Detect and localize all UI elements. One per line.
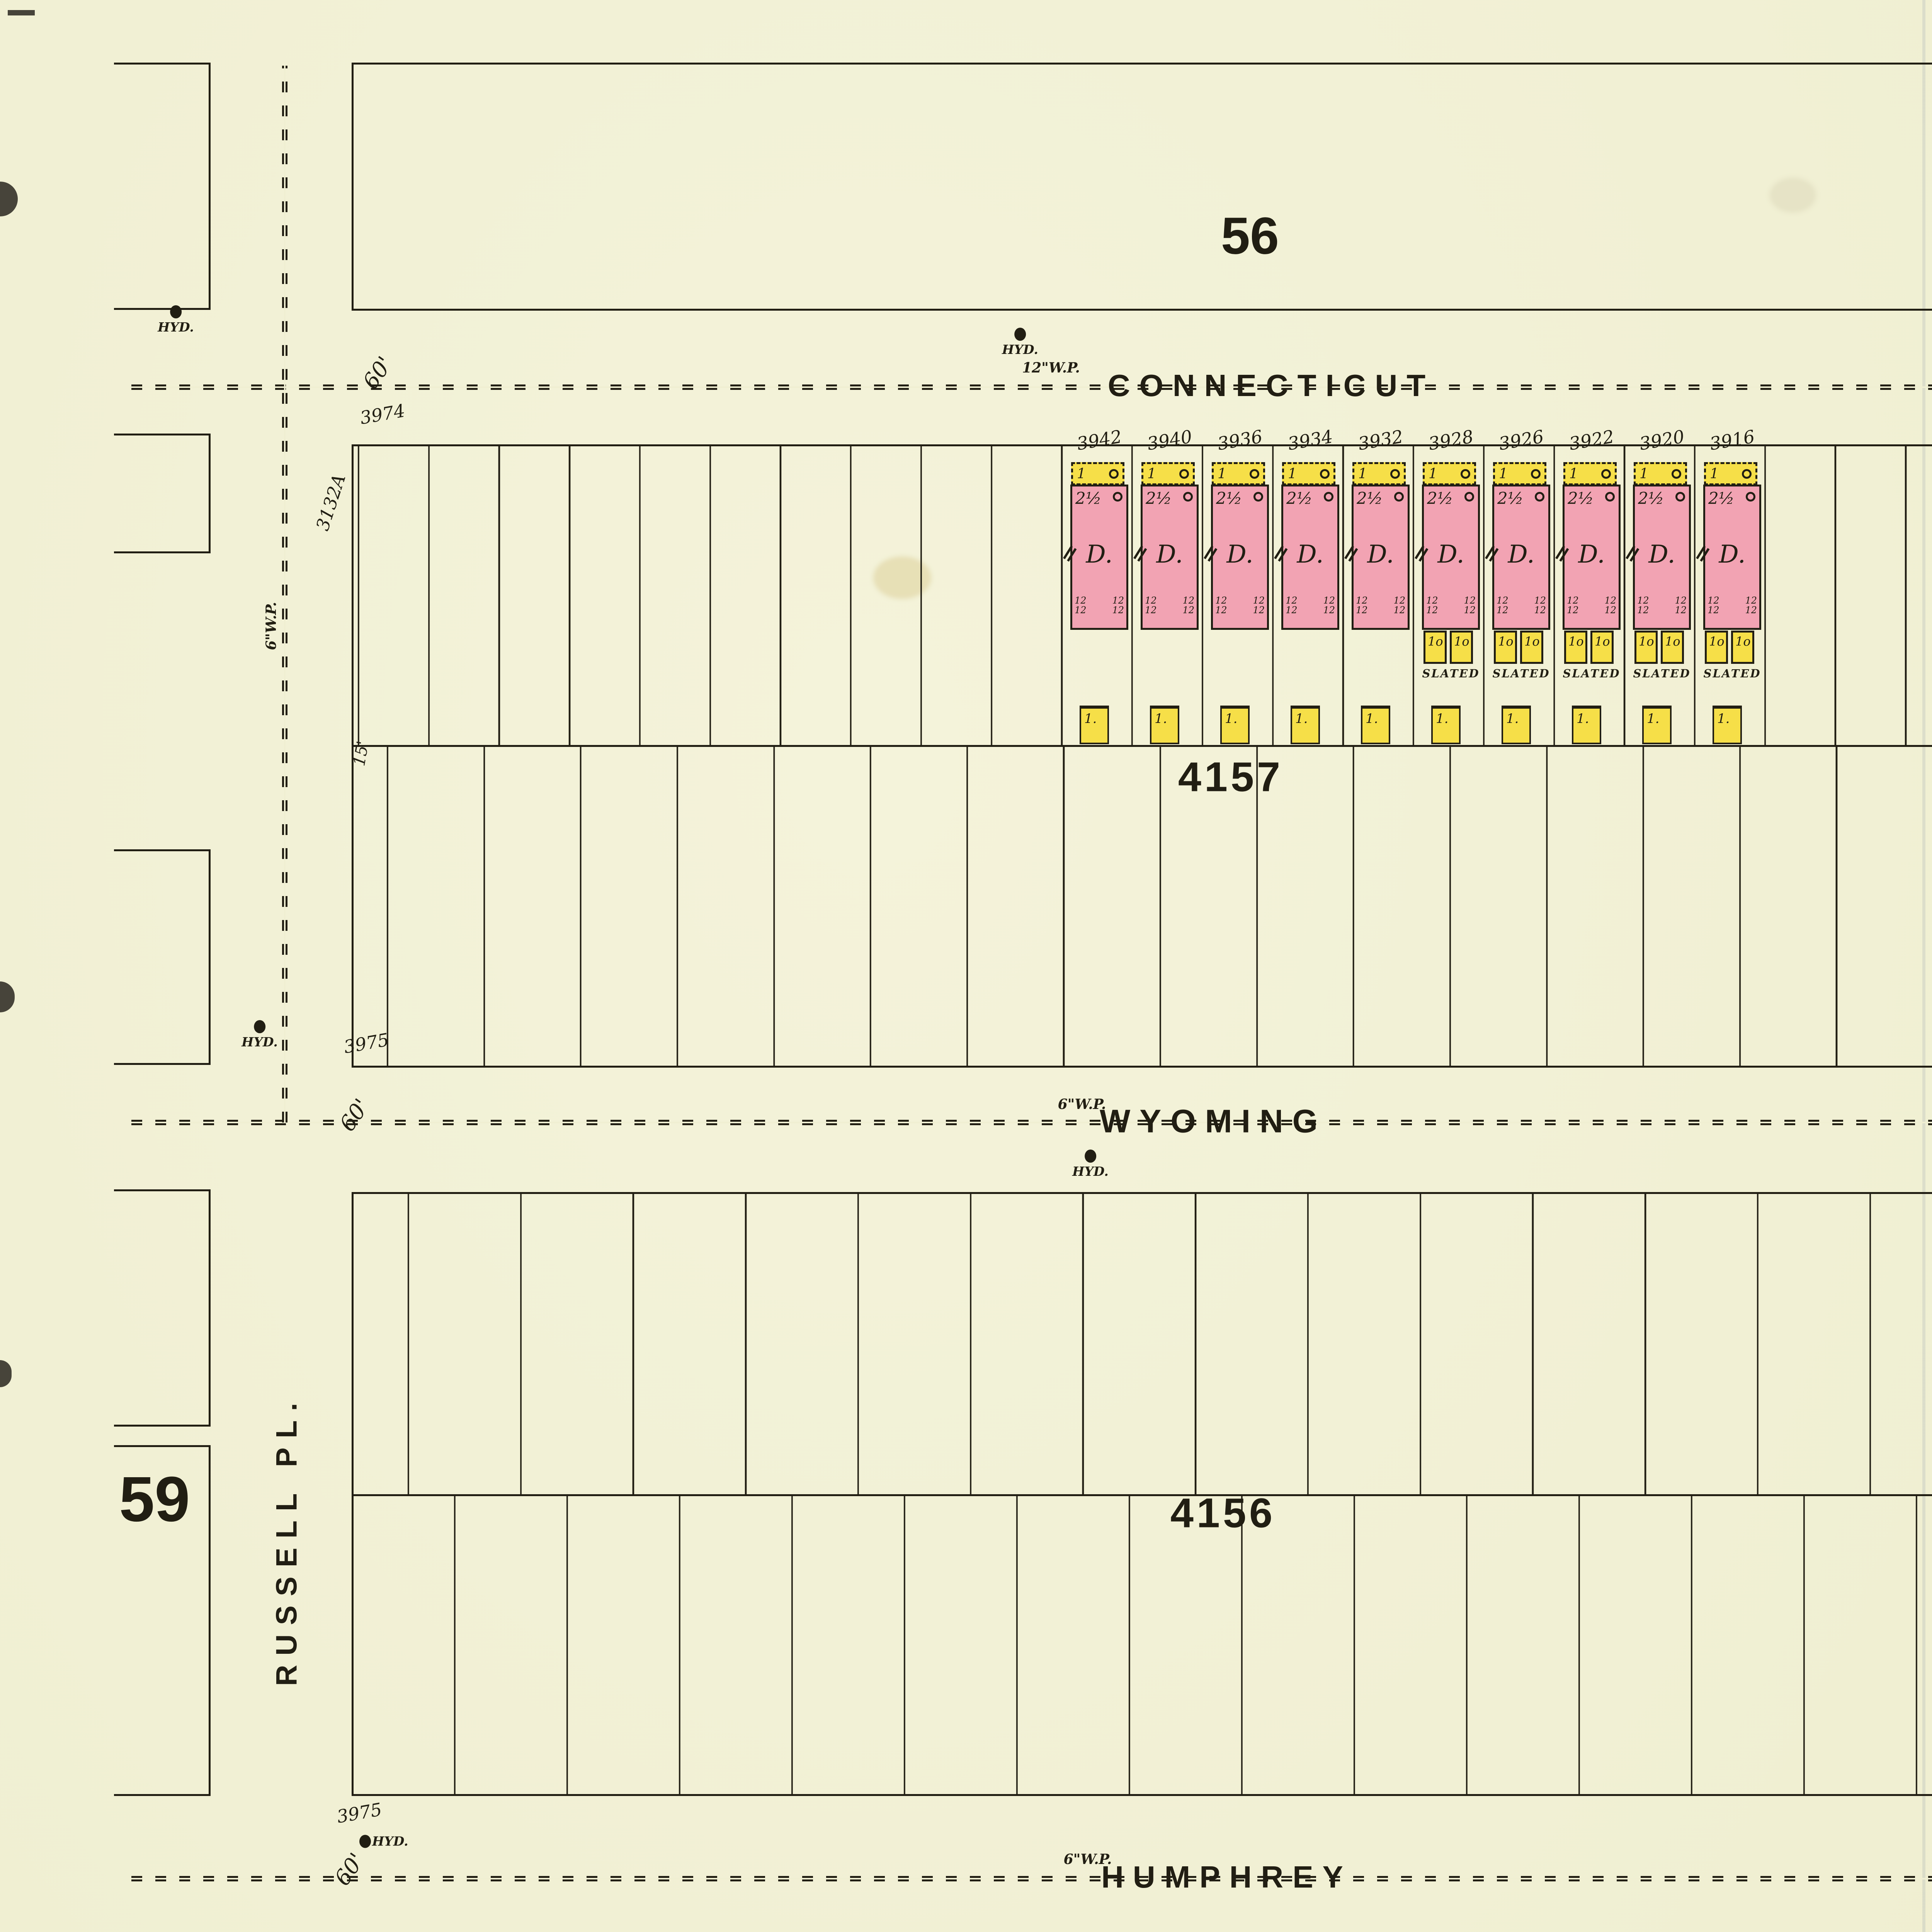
row-house-dwelling: 3936 1 2½ D. 1212 1212 1o 1o SLATED (1211, 462, 1269, 679)
street-name-russell-pl: RUSSELL PL. (270, 1394, 304, 1686)
waterpipe-label: 6"W.P. (263, 602, 279, 650)
shed: 1. (1572, 706, 1601, 744)
rear-porch: 1o (1450, 631, 1473, 664)
circle-mark-icon (1531, 469, 1541, 479)
stories-label: 2½ (1357, 489, 1383, 508)
house-body: 2½ D. 1212 1212 (1281, 485, 1339, 630)
hydrant-dot-icon (359, 1835, 371, 1848)
shed-story-label: 1. (1225, 711, 1237, 726)
porch-story-label: 1 (1569, 466, 1578, 482)
corner-mark: 1212 (1567, 596, 1579, 615)
corner-mark: 1212 (1112, 596, 1124, 615)
porch-story-label: 1 (1288, 466, 1297, 482)
corner-mark: 1212 (1637, 596, 1649, 615)
shed-story-label: 1. (1295, 711, 1308, 726)
edge-tear (0, 981, 15, 1012)
rear-porches: 1o 1o (1705, 631, 1754, 664)
front-porch: 1 (1141, 462, 1195, 485)
row-house-dwelling: 3940 1 2½ D. 1212 1212 1o 1o SLATED (1141, 462, 1199, 679)
circle-mark-icon (1183, 492, 1193, 502)
circle-mark-icon (1250, 469, 1259, 479)
circle-mark-icon (1601, 469, 1611, 479)
circle-mark-icon (1605, 492, 1615, 502)
fire-hydrant: HYD. (158, 305, 194, 335)
stories-label: 2½ (1568, 489, 1594, 508)
row-house-dwelling: 3932 1 2½ D. 1212 1212 1o 1o SLATED (1352, 462, 1410, 679)
row-house-dwelling: 3942 1 2½ D. 1212 1212 1o 1o SLATED (1070, 462, 1128, 679)
stories-label: 2½ (1638, 489, 1664, 508)
waterpipe-wyoming (131, 1120, 1932, 1125)
circle-mark-icon (1672, 469, 1681, 479)
waterpipe-russell (282, 66, 287, 1122)
side-address: 3132A (312, 471, 350, 533)
rear-porches: 1o 1o (1634, 631, 1684, 664)
front-porch: 1 (1493, 462, 1546, 485)
shed: 1. (1150, 706, 1179, 744)
rear-porches: 1o 1o (1564, 631, 1614, 664)
hydrant-dot-icon (1014, 328, 1026, 341)
front-porch: 1 (1634, 462, 1687, 485)
stories-label: 2½ (1146, 489, 1172, 508)
hydrant-dot-icon (254, 1020, 265, 1033)
margin-block (114, 849, 211, 1065)
sanborn-map-sheet: 56 4157 3974 3900 3975 3132A 3133A 15' 1… (0, 0, 1932, 1932)
shed: 1. (1713, 706, 1742, 744)
street-width: 60' (330, 1849, 370, 1890)
corner-mark: 1212 (1356, 596, 1368, 615)
fire-hydrant: HYD. (1002, 328, 1038, 357)
rear-porch: 1o (1661, 631, 1684, 664)
stories-label: 2½ (1075, 489, 1101, 508)
corner-mark: 1212 (1075, 596, 1087, 615)
row-house-dwelling: 3920 1 2½ D. 1212 1212 1o 1o SLATED (1633, 462, 1691, 679)
fire-hydrant: HYD. (359, 1834, 408, 1849)
shed: 1. (1502, 706, 1531, 744)
rear-porch: 1o (1590, 631, 1614, 664)
stories-label: 2½ (1497, 489, 1523, 508)
block-number-4157: 4157 (1178, 753, 1283, 801)
stories-label: 2½ (1427, 489, 1453, 508)
circle-mark-icon (1113, 492, 1122, 502)
waterpipe-label: 12"W.P. (1022, 360, 1080, 376)
waterpipe-label: 6"W.P. (1058, 1096, 1106, 1112)
shed: 1. (1080, 706, 1109, 744)
corner-mark: 1212 (1708, 596, 1719, 615)
circle-mark-icon (1109, 469, 1119, 479)
row-house-dwelling: 3928 1 2½ D. 1212 1212 1o 1o SLATED (1422, 462, 1480, 679)
shed-story-label: 1. (1366, 711, 1378, 726)
rear-porch: 1o (1423, 631, 1447, 664)
block-56 (352, 63, 1932, 311)
circle-mark-icon (1253, 492, 1263, 502)
margin-block (114, 1189, 211, 1427)
front-porch: 1 (1212, 462, 1265, 485)
corner-mark: 1212 (1604, 596, 1616, 615)
margin-block (114, 63, 211, 310)
row-house-dwelling: 3916 1 2½ D. 1212 1212 1o 1o SLATED (1703, 462, 1761, 679)
circle-mark-icon (1675, 492, 1685, 502)
circle-mark-icon (1390, 469, 1400, 479)
rear-porch: 1o (1520, 631, 1543, 664)
circle-mark-icon (1742, 469, 1752, 479)
row-house-dwelling: 3934 1 2½ D. 1212 1212 1o 1o SLATED (1281, 462, 1339, 679)
rear-porch: 1o (1731, 631, 1754, 664)
block-number-4156: 4156 (1170, 1489, 1276, 1537)
rear-porch: 1o (1634, 631, 1658, 664)
dwelling-label: D. (1297, 540, 1323, 569)
rear-porches: 1o 1o (1423, 631, 1473, 664)
circle-mark-icon (1461, 469, 1470, 479)
corner-address: 3974 (359, 400, 407, 429)
house-body: 2½ D. 1212 1212 (1563, 485, 1621, 630)
house-body: 2½ D. 1212 1212 (1422, 485, 1480, 630)
house-body: 2½ D. 1212 1212 (1070, 485, 1128, 630)
street-name-connecticut: CONNECTICUT (1108, 368, 1435, 403)
corner-mark: 1212 (1745, 596, 1757, 615)
front-porch: 1 (1704, 462, 1757, 485)
roof-material-label: SLATED (1563, 667, 1620, 680)
circle-mark-icon (1320, 469, 1330, 479)
front-porch: 1 (1071, 462, 1124, 485)
block-4156 (352, 1192, 1932, 1796)
dwelling-label: D. (1156, 540, 1183, 569)
circle-mark-icon (1324, 492, 1333, 502)
waterpipe-humphrey (131, 1876, 1932, 1881)
shed-story-label: 1. (1717, 711, 1730, 726)
porch-story-label: 1 (1218, 466, 1226, 482)
corner-mark: 1212 (1286, 596, 1298, 615)
rear-porches: 1o 1o (1494, 631, 1543, 664)
rear-porch: 1o (1705, 631, 1728, 664)
shed: 1. (1361, 706, 1390, 744)
row-house-dwelling: 3922 1 2½ D. 1212 1212 1o 1o SLATED (1563, 462, 1621, 679)
house-body: 2½ D. 1212 1212 (1492, 485, 1550, 630)
circle-mark-icon (1746, 492, 1755, 502)
rear-porch: 1o (1494, 631, 1517, 664)
dwelling-label: D. (1578, 540, 1605, 569)
corner-mark: 1212 (1215, 596, 1227, 615)
dwelling-label: D. (1508, 540, 1534, 569)
porch-story-label: 1 (1429, 466, 1437, 482)
porch-story-label: 1 (1639, 466, 1648, 482)
lot-lines (354, 1496, 1932, 1796)
porch-story-label: 1 (1499, 466, 1508, 482)
corner-mark: 1212 (1464, 596, 1476, 615)
porch-story-label: 1 (1077, 466, 1086, 482)
stories-label: 2½ (1216, 489, 1242, 508)
porch-story-label: 1 (1710, 466, 1719, 482)
hydrant-dot-icon (170, 305, 182, 318)
shed-story-label: 1. (1506, 711, 1519, 726)
waterpipe-label: 6"W.P. (1064, 1851, 1112, 1867)
corner-mark: 1212 (1323, 596, 1335, 615)
house-body: 2½ D. 1212 1212 (1352, 485, 1410, 630)
shed: 1. (1291, 706, 1320, 744)
margin-block (114, 434, 211, 553)
corner-mark: 1212 (1534, 596, 1546, 615)
rear-porch: 1o (1564, 631, 1587, 664)
fire-hydrant: HYD. (1072, 1150, 1109, 1179)
street-width: 60' (335, 1094, 375, 1136)
roof-material-label: SLATED (1703, 667, 1761, 680)
dwelling-label: D. (1437, 540, 1464, 569)
dwelling-label: D. (1226, 540, 1253, 569)
lot-lines (354, 747, 1932, 1066)
front-porch: 1 (1563, 462, 1617, 485)
shed-story-label: 1. (1577, 711, 1589, 726)
corner-mark: 1212 (1393, 596, 1405, 615)
shed-story-label: 1. (1155, 711, 1167, 726)
roof-material-label: SLATED (1633, 667, 1690, 680)
house-body: 2½ D. 1212 1212 (1141, 485, 1199, 630)
hydrant-dot-icon (1085, 1150, 1096, 1163)
front-porch: 1 (1352, 462, 1406, 485)
circle-mark-icon (1179, 469, 1189, 479)
lot-lines (354, 1194, 1932, 1494)
house-body: 2½ D. 1212 1212 (1633, 485, 1691, 630)
circle-mark-icon (1464, 492, 1474, 502)
shed-story-label: 1. (1084, 711, 1097, 726)
shed: 1. (1220, 706, 1250, 744)
edge-tear (0, 182, 18, 216)
row-house-dwelling: 3926 1 2½ D. 1212 1212 1o 1o SLATED (1492, 462, 1550, 679)
circle-mark-icon (1535, 492, 1544, 502)
house-body: 2½ D. 1212 1212 (1211, 485, 1269, 630)
front-porch: 1 (1423, 462, 1476, 485)
corner-mark: 1212 (1675, 596, 1687, 615)
corner-mark: 1212 (1182, 596, 1194, 615)
adjacent-sheet-59: 59 (119, 1463, 190, 1536)
corner-mark: 1212 (1145, 596, 1157, 615)
shed-story-label: 1. (1436, 711, 1448, 726)
roof-material-label: SLATED (1492, 667, 1550, 680)
edge-tear (0, 1360, 12, 1387)
fire-hydrant: HYD. (241, 1020, 278, 1049)
corner-mark: 1212 (1253, 596, 1265, 615)
shed-story-label: 1. (1647, 711, 1659, 726)
waterpipe-connecticut (131, 384, 1932, 390)
dwelling-label: D. (1719, 540, 1745, 569)
circle-mark-icon (1394, 492, 1404, 502)
porch-story-label: 1 (1147, 466, 1156, 482)
stories-label: 2½ (1708, 489, 1734, 508)
front-porch: 1 (1282, 462, 1335, 485)
porch-story-label: 1 (1358, 466, 1367, 482)
house-body: 2½ D. 1212 1212 (1703, 485, 1761, 630)
street-name-wyoming: WYOMING (1100, 1103, 1327, 1140)
street-name-humphrey: HUMPHREY (1101, 1859, 1352, 1895)
dwelling-label: D. (1648, 540, 1675, 569)
roof-material-label: SLATED (1422, 667, 1480, 680)
corner-mark: 1212 (1426, 596, 1438, 615)
corner-address: 3975 (335, 1799, 384, 1827)
stories-label: 2½ (1286, 489, 1312, 508)
shed: 1. (1642, 706, 1672, 744)
shed: 1. (1431, 706, 1461, 744)
dwelling-label: D. (1367, 540, 1394, 569)
corner-mark (8, 10, 35, 15)
dwelling-label: D. (1086, 540, 1112, 569)
corner-mark: 1212 (1497, 596, 1509, 615)
adjacent-sheet-56: 56 (1221, 206, 1279, 266)
